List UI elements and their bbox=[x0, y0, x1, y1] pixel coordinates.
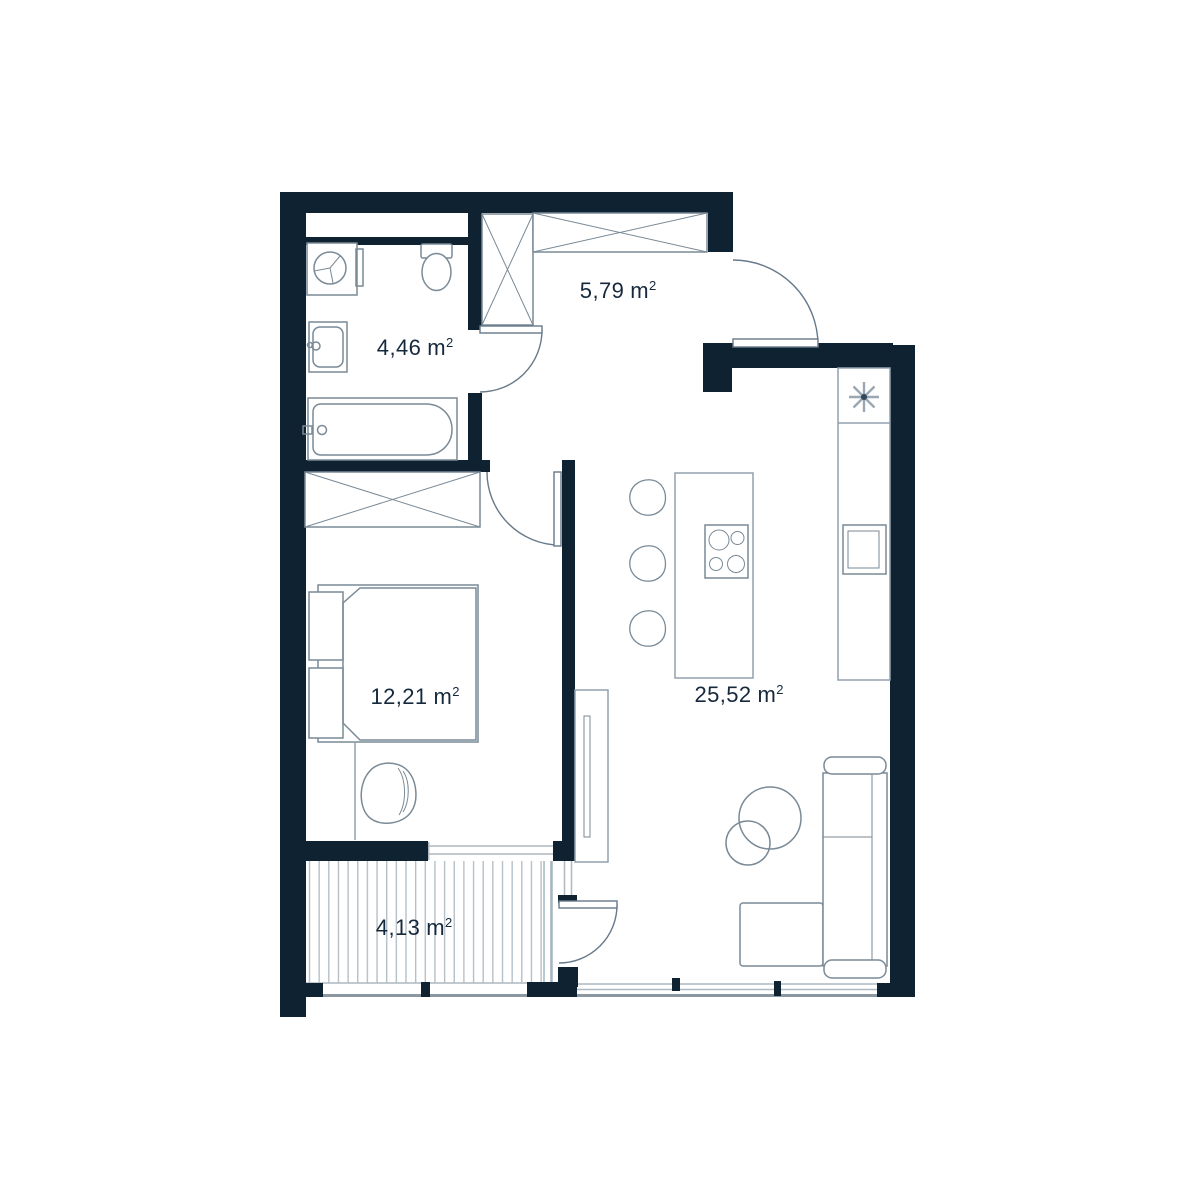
area-value: 4,13 bbox=[376, 915, 420, 940]
bathroom-door bbox=[480, 326, 542, 392]
area-unit: m bbox=[426, 915, 445, 940]
bedroom-south-wall bbox=[280, 841, 428, 861]
bathroom-area-label: 4,46m2 bbox=[377, 335, 453, 361]
window-opening bbox=[428, 841, 553, 861]
railing-post bbox=[306, 983, 323, 997]
door-leaf bbox=[480, 326, 542, 333]
sofa-armrest bbox=[824, 757, 886, 774]
area-unit: m bbox=[630, 278, 649, 303]
bedroom-area-label: 12,21m2 bbox=[370, 684, 459, 710]
railing-post bbox=[672, 978, 680, 991]
door-swing-arc bbox=[480, 330, 542, 392]
bathtub bbox=[303, 398, 457, 460]
kitchen-island bbox=[675, 473, 753, 678]
kitchen-counter bbox=[838, 368, 890, 680]
left-wall bbox=[280, 192, 306, 1017]
tall-wardrobe bbox=[482, 214, 533, 325]
bathtub-outline bbox=[308, 398, 457, 460]
area-exponent: 2 bbox=[446, 335, 453, 350]
asterisk-center-dot bbox=[861, 394, 867, 400]
area-unit: m bbox=[434, 684, 453, 709]
top-wall bbox=[280, 192, 733, 213]
boiler-symbol bbox=[849, 382, 879, 412]
area-value: 12,21 bbox=[370, 684, 427, 709]
area-unit: m bbox=[758, 682, 777, 707]
balcony-area-label: 4,13m2 bbox=[376, 915, 452, 941]
washing-machine bbox=[307, 243, 363, 295]
kitchen bbox=[630, 368, 890, 680]
nightstand bbox=[309, 668, 343, 738]
bar-stools bbox=[630, 480, 666, 647]
area-exponent: 2 bbox=[452, 684, 459, 699]
corner-sofa bbox=[740, 757, 887, 978]
stool bbox=[630, 611, 666, 647]
toilet-bowl bbox=[422, 254, 451, 291]
coffee-tables bbox=[726, 787, 801, 865]
entry-door bbox=[733, 260, 818, 347]
door-leaf bbox=[554, 472, 561, 546]
floor-plan: 4,46m2 5,79m2 12,21m2 25,52m2 4,13m2 bbox=[0, 0, 1200, 1200]
armchair bbox=[361, 763, 416, 823]
bathroom-sink bbox=[308, 322, 348, 372]
bathroom-east-wall-lower bbox=[468, 393, 482, 460]
hallway-area-label: 5,79m2 bbox=[580, 278, 656, 304]
hallway-wardrobes bbox=[482, 213, 707, 325]
balcony-corner-block bbox=[527, 982, 577, 997]
sofa-armrest bbox=[824, 960, 886, 978]
balcony-door bbox=[559, 901, 617, 963]
bedroom-door bbox=[487, 472, 561, 546]
tv-cabinet bbox=[575, 690, 608, 862]
area-exponent: 2 bbox=[776, 682, 783, 697]
door-leaf bbox=[733, 339, 818, 347]
counter-run bbox=[838, 368, 890, 680]
bedroom-furniture bbox=[305, 472, 480, 840]
bedroom-window bbox=[428, 841, 553, 861]
door-leaf bbox=[559, 901, 617, 908]
bedroom-wardrobe bbox=[305, 472, 480, 527]
entry-pier-lower bbox=[703, 368, 732, 392]
floor-plan-canvas bbox=[0, 0, 1200, 1200]
nightstand bbox=[309, 592, 343, 660]
railing-post bbox=[421, 982, 430, 997]
armchair-crease bbox=[398, 768, 408, 815]
door-swing-arc bbox=[487, 472, 559, 545]
living-room-furniture bbox=[575, 690, 887, 978]
bathroom-east-wall-upper bbox=[468, 213, 482, 330]
stool bbox=[630, 480, 666, 516]
toilet bbox=[421, 244, 452, 291]
bedroom-east-wall-corner bbox=[553, 841, 575, 861]
sofa-body bbox=[823, 773, 887, 966]
railing-post bbox=[774, 981, 781, 996]
right-wall bbox=[890, 345, 915, 997]
stool bbox=[630, 546, 666, 582]
cabinet-outline bbox=[575, 690, 608, 862]
door-swing-arc bbox=[559, 905, 617, 963]
bathroom-south-wall bbox=[280, 460, 490, 472]
door-swing-arc bbox=[733, 260, 818, 345]
area-exponent: 2 bbox=[445, 915, 452, 930]
area-value: 4,46 bbox=[377, 335, 421, 360]
area-exponent: 2 bbox=[649, 278, 656, 293]
entry-pier-upper bbox=[708, 213, 733, 252]
living-room-area-label: 25,52m2 bbox=[694, 682, 783, 708]
area-value: 5,79 bbox=[580, 278, 624, 303]
round-table bbox=[726, 821, 770, 865]
double-bed bbox=[309, 585, 478, 742]
sofa-chaise bbox=[740, 903, 823, 966]
area-value: 25,52 bbox=[694, 682, 751, 707]
wide-wardrobe bbox=[533, 213, 707, 252]
corner-block-southeast bbox=[877, 983, 915, 997]
bedroom-east-wall bbox=[562, 460, 575, 841]
area-unit: m bbox=[427, 335, 446, 360]
